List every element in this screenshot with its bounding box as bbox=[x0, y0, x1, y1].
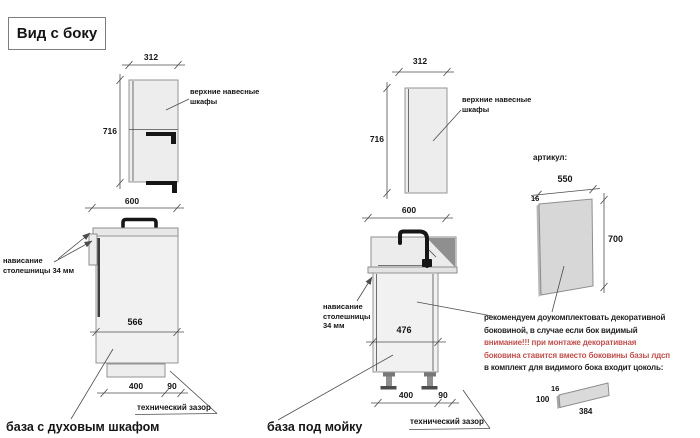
oven-handle bbox=[123, 220, 156, 228]
label-left-countertop-overhang: нависание столешницы 34 мм bbox=[3, 256, 79, 275]
note-line-2: боковиной, в случае если бок видимый bbox=[484, 326, 637, 335]
label-left-technical-gap: технический зазор bbox=[137, 403, 211, 412]
label-artikul: артикул: bbox=[533, 153, 567, 162]
dim-panel-width: 550 bbox=[551, 174, 579, 184]
adjustable-leg bbox=[422, 373, 438, 390]
left-wall-cabinet-shape bbox=[129, 80, 178, 193]
decorative-side-panel-shape bbox=[537, 199, 594, 297]
label-sink-technical-gap: технический зазор bbox=[410, 417, 484, 426]
dim-left-gap: 90 bbox=[164, 381, 180, 391]
dim-left-wall-width: 312 bbox=[137, 52, 165, 62]
dim-middle-wall-width: 312 bbox=[406, 56, 434, 66]
dim-panel-thickness: 16 bbox=[531, 194, 539, 203]
left-base-cabinet-shape bbox=[89, 220, 178, 378]
note-line-3: внимание!!! при монтаже декоративная bbox=[484, 338, 636, 347]
side-view-drawing-canvas: Вид с боку 312 716 верхние навесные шкаф… bbox=[0, 0, 700, 438]
dim-sink-base-inner: 476 bbox=[390, 325, 418, 335]
plinth-piece-shape bbox=[557, 383, 610, 409]
page-title: Вид с боку bbox=[8, 17, 106, 50]
middle-wall-cabinet-shape bbox=[405, 88, 447, 193]
dim-panel-height: 700 bbox=[608, 234, 623, 244]
note-line-5: в комплект для видимого бока входит цоко… bbox=[484, 363, 663, 372]
dim-left-plinth: 400 bbox=[124, 381, 148, 391]
dim-sink-base-width: 600 bbox=[395, 205, 423, 215]
dim-plinth-length: 384 bbox=[579, 407, 592, 416]
note-line-1: рекомендуем доукомплектовать декоративно… bbox=[484, 313, 665, 322]
dim-sink-gap: 90 bbox=[435, 390, 451, 400]
sink-base-cabinet-shape bbox=[368, 232, 457, 390]
caption-sink-base: база под мойку bbox=[267, 420, 362, 434]
dim-left-wall-height: 716 bbox=[99, 126, 117, 136]
label-sink-countertop-overhang: нависание столешницы 34 мм bbox=[323, 302, 371, 331]
dim-left-base-inner: 566 bbox=[121, 317, 149, 327]
dim-middle-wall-height: 716 bbox=[366, 134, 384, 144]
dim-plinth-thickness: 16 bbox=[551, 384, 559, 393]
dim-sink-plinth: 400 bbox=[394, 390, 418, 400]
dim-left-base-width: 600 bbox=[118, 196, 146, 206]
note-line-4: боковина ставится вместо боковины базы л… bbox=[484, 351, 670, 360]
adjustable-leg bbox=[381, 373, 397, 390]
label-middle-wall-cabinets: верхние навесные шкафы bbox=[462, 95, 536, 114]
drawing-linework bbox=[0, 0, 700, 438]
dim-plinth-height: 100 bbox=[536, 395, 549, 404]
plinth-recess bbox=[107, 364, 165, 377]
caption-oven-base: база с духовым шкафом bbox=[6, 420, 159, 434]
label-left-wall-cabinets: верхние навесные шкафы bbox=[190, 87, 264, 106]
